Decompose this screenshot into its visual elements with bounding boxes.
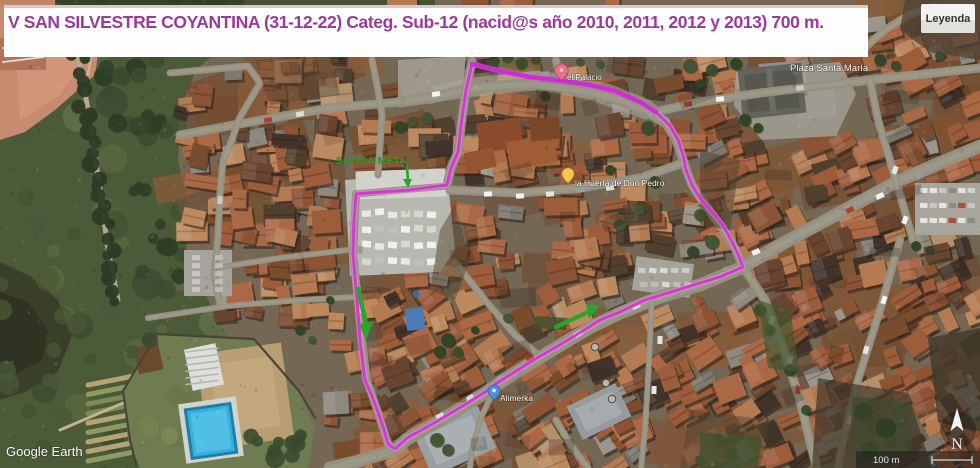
- svg-text:100 m: 100 m: [873, 455, 899, 466]
- svg-text:V SAN SILVESTRE COYANTINA (31-: V SAN SILVESTRE COYANTINA (31-12-22) Cat…: [8, 12, 824, 32]
- svg-text:SALIDA META: SALIDA META: [336, 155, 407, 167]
- svg-text:la Huerta de Don Pedro: la Huerta de Don Pedro: [575, 178, 665, 188]
- svg-text:el Palacio: el Palacio: [567, 73, 602, 82]
- svg-text:Leyenda: Leyenda: [926, 13, 972, 25]
- svg-text:Plaza Santa María: Plaza Santa María: [790, 63, 869, 74]
- svg-text:N: N: [951, 436, 963, 453]
- svg-text:Alimerka: Alimerka: [500, 393, 533, 403]
- svg-text:Google Earth: Google Earth: [6, 444, 83, 459]
